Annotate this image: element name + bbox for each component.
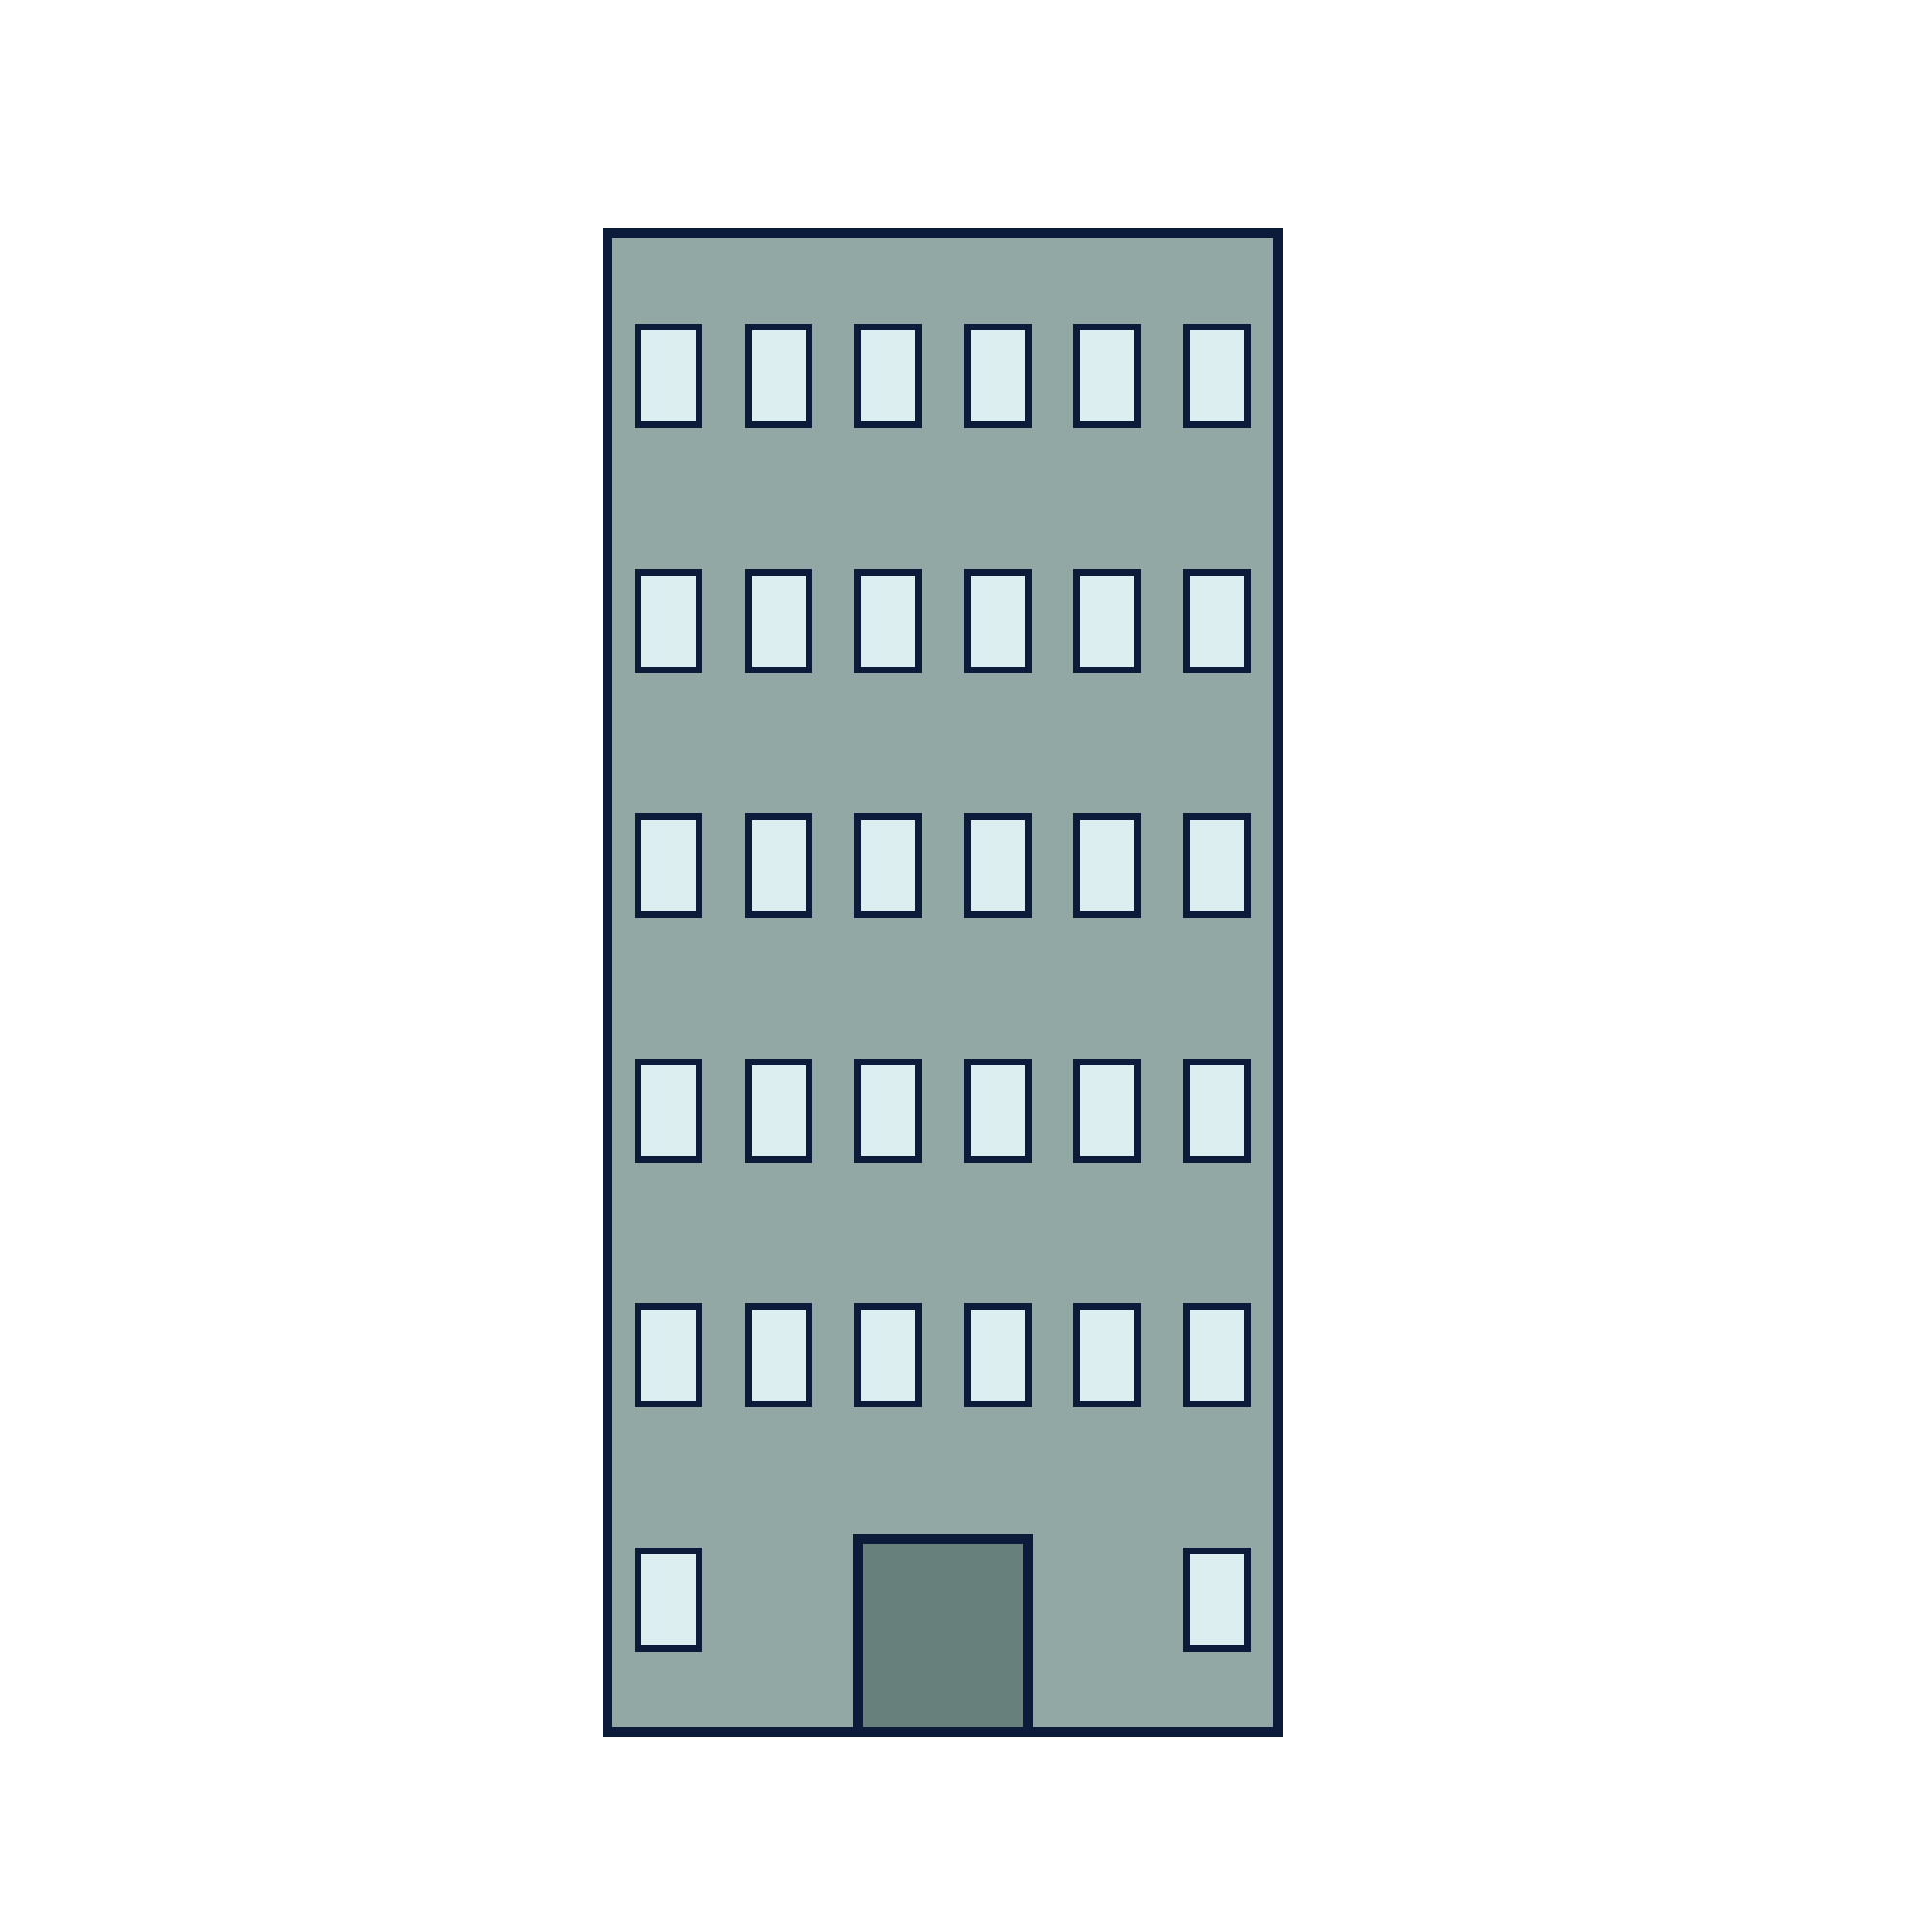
building-window <box>1073 813 1141 918</box>
building-window <box>635 324 702 428</box>
building-window <box>1073 1059 1141 1163</box>
building-window <box>1073 569 1141 673</box>
building-window <box>964 1059 1032 1163</box>
building-window <box>854 324 922 428</box>
building-window <box>1183 324 1251 428</box>
building-window <box>1183 1059 1251 1163</box>
building-door <box>853 1534 1033 1727</box>
building-window <box>745 569 812 673</box>
building-window <box>1073 324 1141 428</box>
building-window <box>854 813 922 918</box>
building-window <box>1183 1548 1251 1652</box>
building-window <box>854 1303 922 1407</box>
building-window <box>964 1303 1032 1407</box>
building-window <box>745 813 812 918</box>
building-window <box>1073 1303 1141 1407</box>
building-window <box>635 1059 702 1163</box>
building-window <box>1183 1303 1251 1407</box>
building-window <box>745 324 812 428</box>
scene <box>0 0 1932 1932</box>
building-window <box>1183 813 1251 918</box>
building-window <box>964 813 1032 918</box>
building-window <box>854 1059 922 1163</box>
building-window <box>964 324 1032 428</box>
building-window <box>635 1548 702 1652</box>
building-window <box>635 1303 702 1407</box>
building-window <box>745 1303 812 1407</box>
building-window <box>635 813 702 918</box>
building-window <box>635 569 702 673</box>
building-window <box>854 569 922 673</box>
building-window <box>745 1059 812 1163</box>
building-window <box>964 569 1032 673</box>
building <box>603 228 1283 1737</box>
building-window <box>1183 569 1251 673</box>
